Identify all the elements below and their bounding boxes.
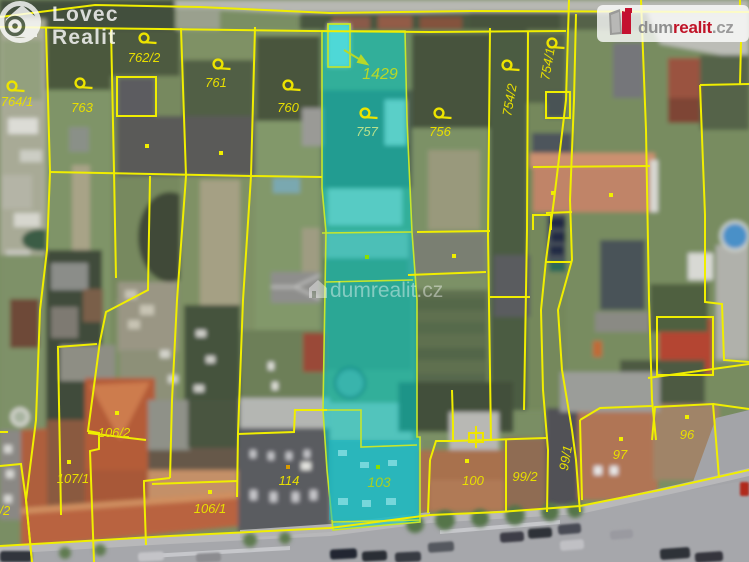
svg-text:107/2: 107/2 [0, 503, 11, 518]
svg-text:760: 760 [277, 100, 299, 115]
svg-text:103: 103 [367, 474, 391, 490]
svg-text:106/1: 106/1 [194, 501, 227, 516]
svg-text:763: 763 [71, 100, 93, 115]
svg-text:106/2: 106/2 [98, 425, 131, 440]
svg-text:dumrealit.cz: dumrealit.cz [638, 18, 734, 37]
svg-text:1429: 1429 [362, 66, 398, 83]
svg-text:99/2: 99/2 [512, 469, 538, 484]
svg-text:Realit: Realit [52, 26, 116, 49]
svg-text:764/1: 764/1 [1, 94, 34, 109]
svg-text:762/2: 762/2 [128, 50, 161, 65]
svg-text:Lovec: Lovec [52, 3, 119, 26]
svg-text:761: 761 [205, 75, 227, 90]
svg-text:757: 757 [356, 124, 378, 139]
svg-text:100: 100 [462, 473, 484, 488]
svg-text:96: 96 [680, 427, 695, 442]
svg-text:97: 97 [613, 447, 628, 462]
svg-text:114: 114 [279, 473, 300, 488]
svg-text:dumrealit.cz: dumrealit.cz [330, 279, 443, 302]
svg-text:107/1: 107/1 [57, 471, 90, 486]
svg-text:756: 756 [429, 124, 451, 139]
